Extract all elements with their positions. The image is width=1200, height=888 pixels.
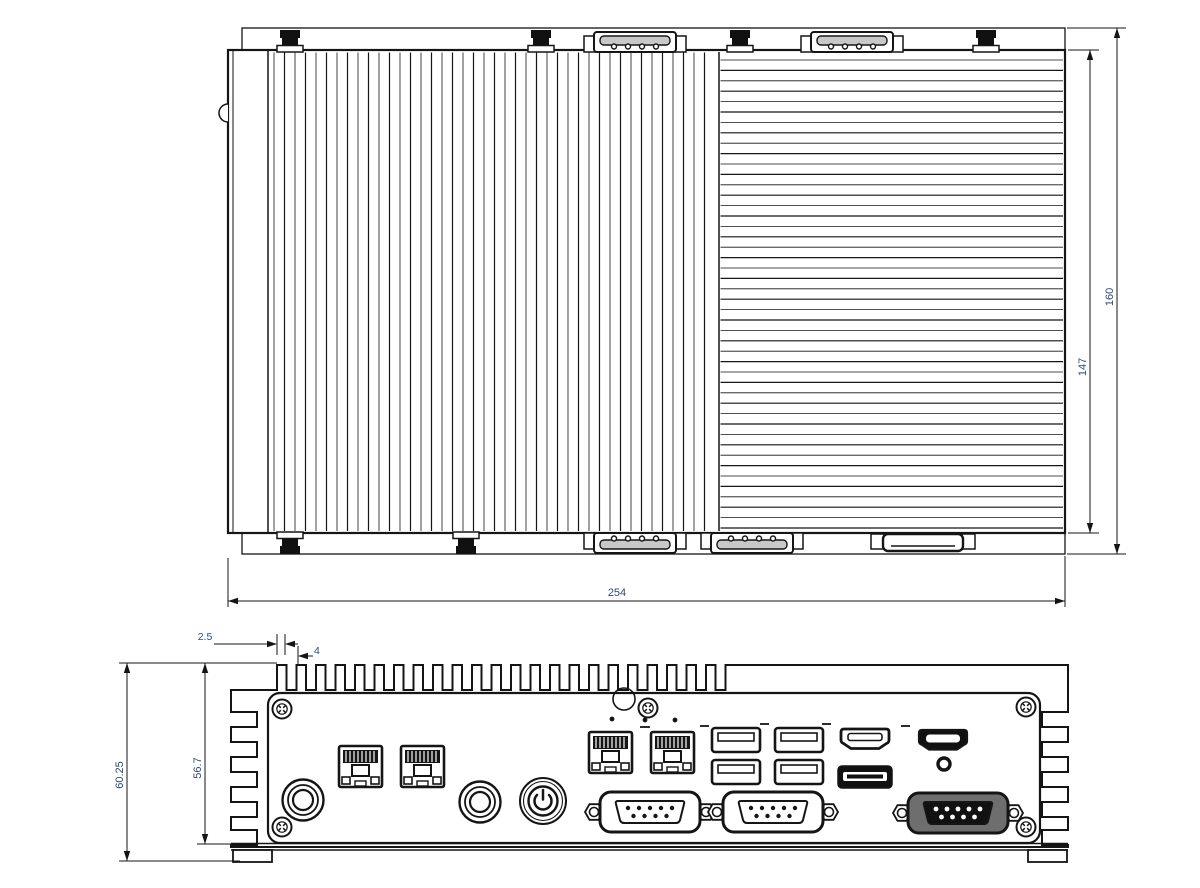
com-db9-1 bbox=[585, 792, 715, 832]
dimension-arrowhead bbox=[1055, 598, 1065, 604]
hdmi-port-1 bbox=[841, 729, 889, 749]
lan-rj45-4 bbox=[651, 732, 694, 773]
led-dot-1 bbox=[610, 717, 615, 722]
front-view bbox=[231, 665, 1068, 862]
dimension-254: 254 bbox=[228, 556, 1065, 607]
technical-drawing-canvas: 147 160 254 bbox=[0, 0, 1200, 888]
reset-hole bbox=[938, 758, 950, 770]
usb-port-1 bbox=[712, 728, 760, 752]
lan-rj45-2 bbox=[401, 746, 444, 787]
lan-rj45-3 bbox=[589, 732, 632, 773]
usb-port-3 bbox=[712, 760, 760, 784]
power-button[interactable] bbox=[520, 778, 566, 824]
db9-top-silhouette-1 bbox=[584, 32, 686, 52]
db9-bottom-silhouette-1 bbox=[584, 533, 686, 553]
lan-rj45-1 bbox=[339, 746, 382, 787]
screw-top-right bbox=[1017, 698, 1036, 717]
dimension-arrowhead bbox=[267, 641, 277, 647]
antenna-hole-1 bbox=[283, 780, 324, 821]
dimension-arrowhead bbox=[1114, 544, 1120, 554]
dimension-arrowhead bbox=[285, 641, 295, 647]
dimension-56-7: 56.7 bbox=[192, 663, 236, 844]
com-db9-3 bbox=[893, 793, 1023, 833]
led-dot-2 bbox=[643, 718, 648, 723]
db9-bottom-silhouette-2 bbox=[701, 533, 803, 553]
dimension-arrowhead bbox=[1114, 28, 1120, 38]
dimension-arrowhead bbox=[202, 663, 208, 673]
right-foot bbox=[1028, 850, 1067, 862]
left-foot bbox=[233, 850, 272, 862]
screw-top-left bbox=[273, 700, 292, 719]
led-dot-3 bbox=[673, 718, 678, 723]
screw-bottom-left bbox=[273, 818, 292, 837]
dimension-147: 147 bbox=[1068, 50, 1099, 533]
dimension-arrowhead bbox=[124, 851, 130, 861]
dim-overall-height: 60.25 bbox=[114, 761, 126, 789]
dim-fin-slot: 2.5 bbox=[198, 631, 213, 643]
usb-port-2 bbox=[775, 728, 823, 752]
screw-top-center bbox=[639, 699, 658, 718]
side-antenna-bump bbox=[219, 104, 228, 122]
dimension-2-5: 2.5 bbox=[198, 631, 298, 655]
dim-overall-width: 254 bbox=[608, 587, 626, 599]
dim-body-depth: 147 bbox=[1077, 358, 1089, 376]
dimension-arrowhead bbox=[298, 653, 308, 659]
dimension-arrowhead bbox=[1087, 50, 1093, 60]
antenna-hole-2 bbox=[460, 782, 501, 823]
dimension-arrowhead bbox=[124, 663, 130, 673]
db9-top-silhouette-2 bbox=[801, 32, 903, 52]
top-view bbox=[219, 28, 1065, 554]
dimension-arrowhead bbox=[1087, 523, 1093, 533]
dim-body-height: 56.7 bbox=[192, 757, 204, 778]
displayport bbox=[838, 766, 892, 788]
drawing-svg: 147 160 254 bbox=[0, 0, 1200, 888]
dimension-arrowhead bbox=[202, 834, 208, 844]
dimension-160: 160 bbox=[1067, 28, 1126, 554]
com-db9-2 bbox=[708, 792, 838, 832]
hdmi-port-2 bbox=[919, 730, 967, 750]
dim-overall-depth: 160 bbox=[1104, 288, 1116, 306]
connector-bottom-silhouette bbox=[871, 534, 975, 551]
usb-port-4 bbox=[775, 760, 823, 784]
dimension-arrowhead bbox=[228, 598, 238, 604]
dim-fin-pitch: 4 bbox=[314, 645, 320, 657]
